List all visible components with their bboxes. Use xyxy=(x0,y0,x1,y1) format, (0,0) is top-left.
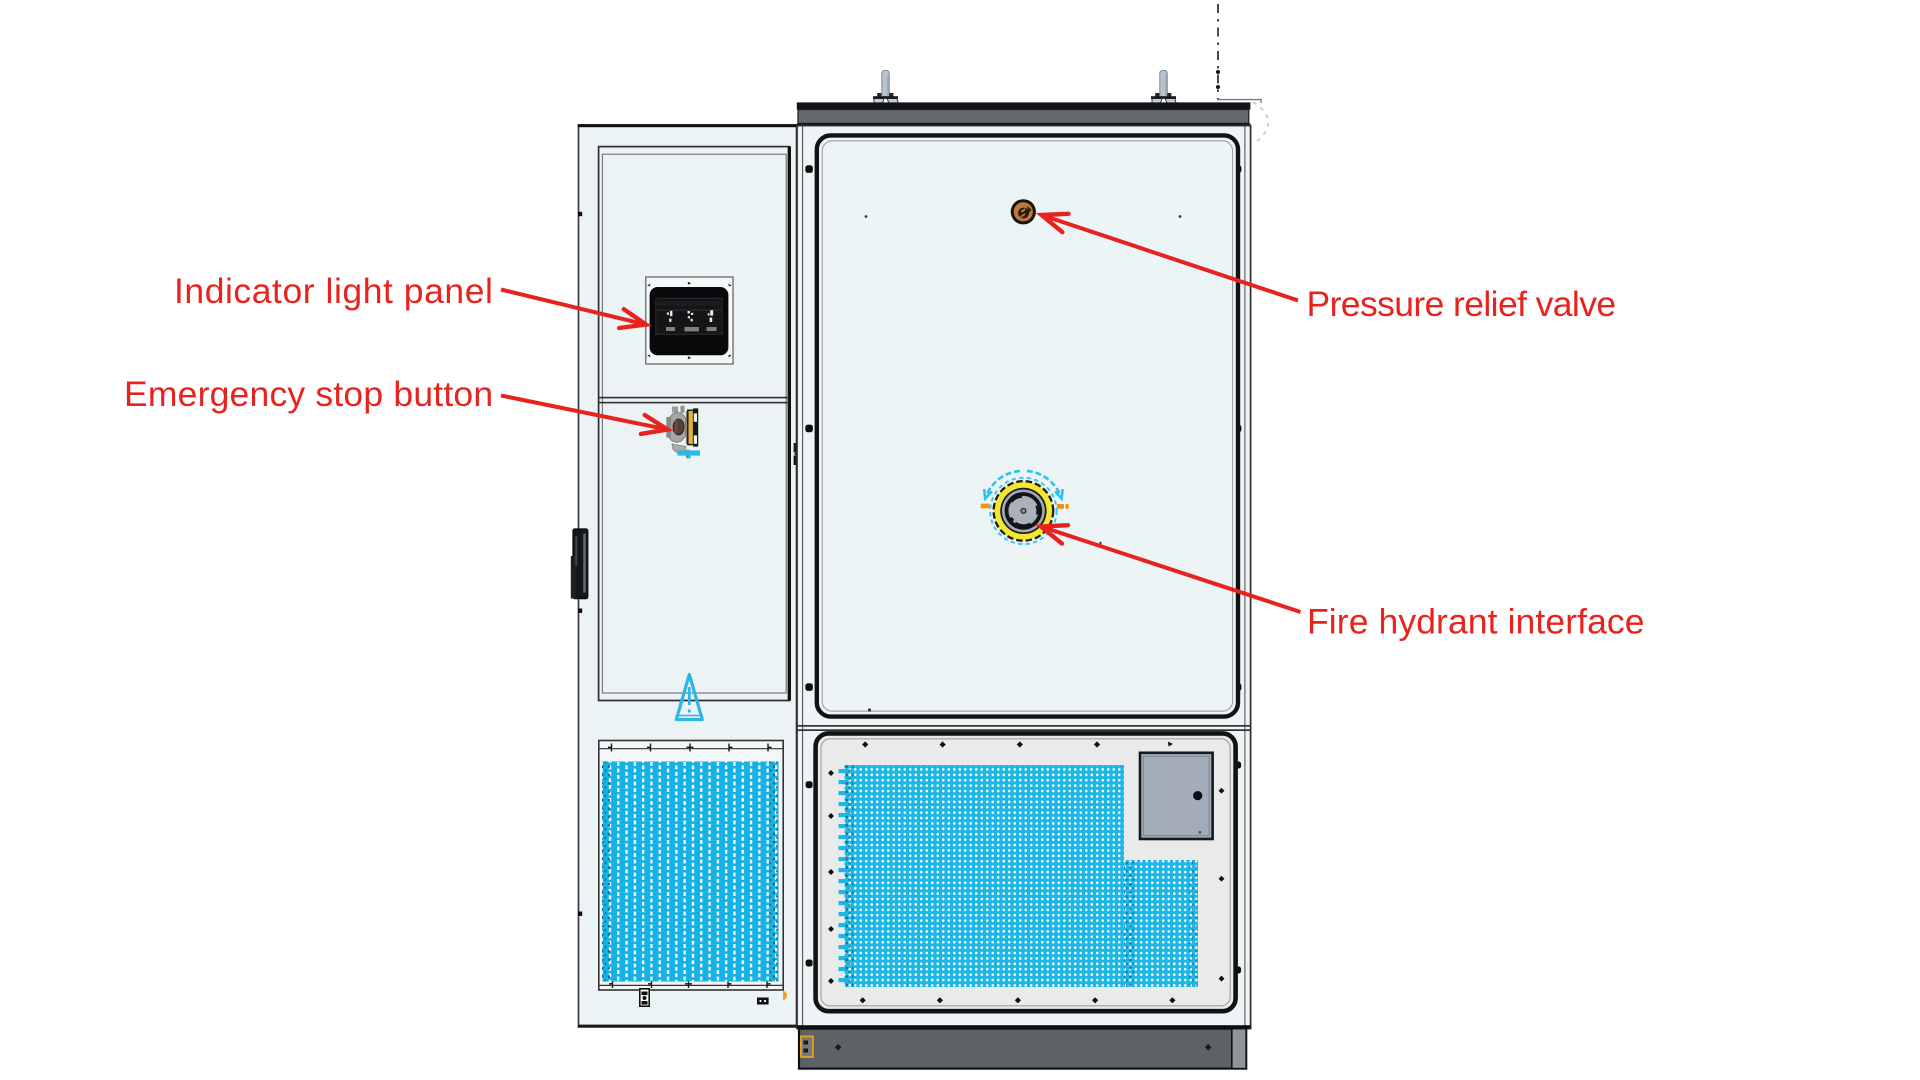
svg-text:Emergency stop button: Emergency stop button xyxy=(124,374,493,414)
svg-text:Fire hydrant interface: Fire hydrant interface xyxy=(1307,602,1645,642)
svg-text:Indicator light panel: Indicator light panel xyxy=(174,271,493,311)
svg-text:Pressure relief valve: Pressure relief valve xyxy=(1307,284,1616,324)
